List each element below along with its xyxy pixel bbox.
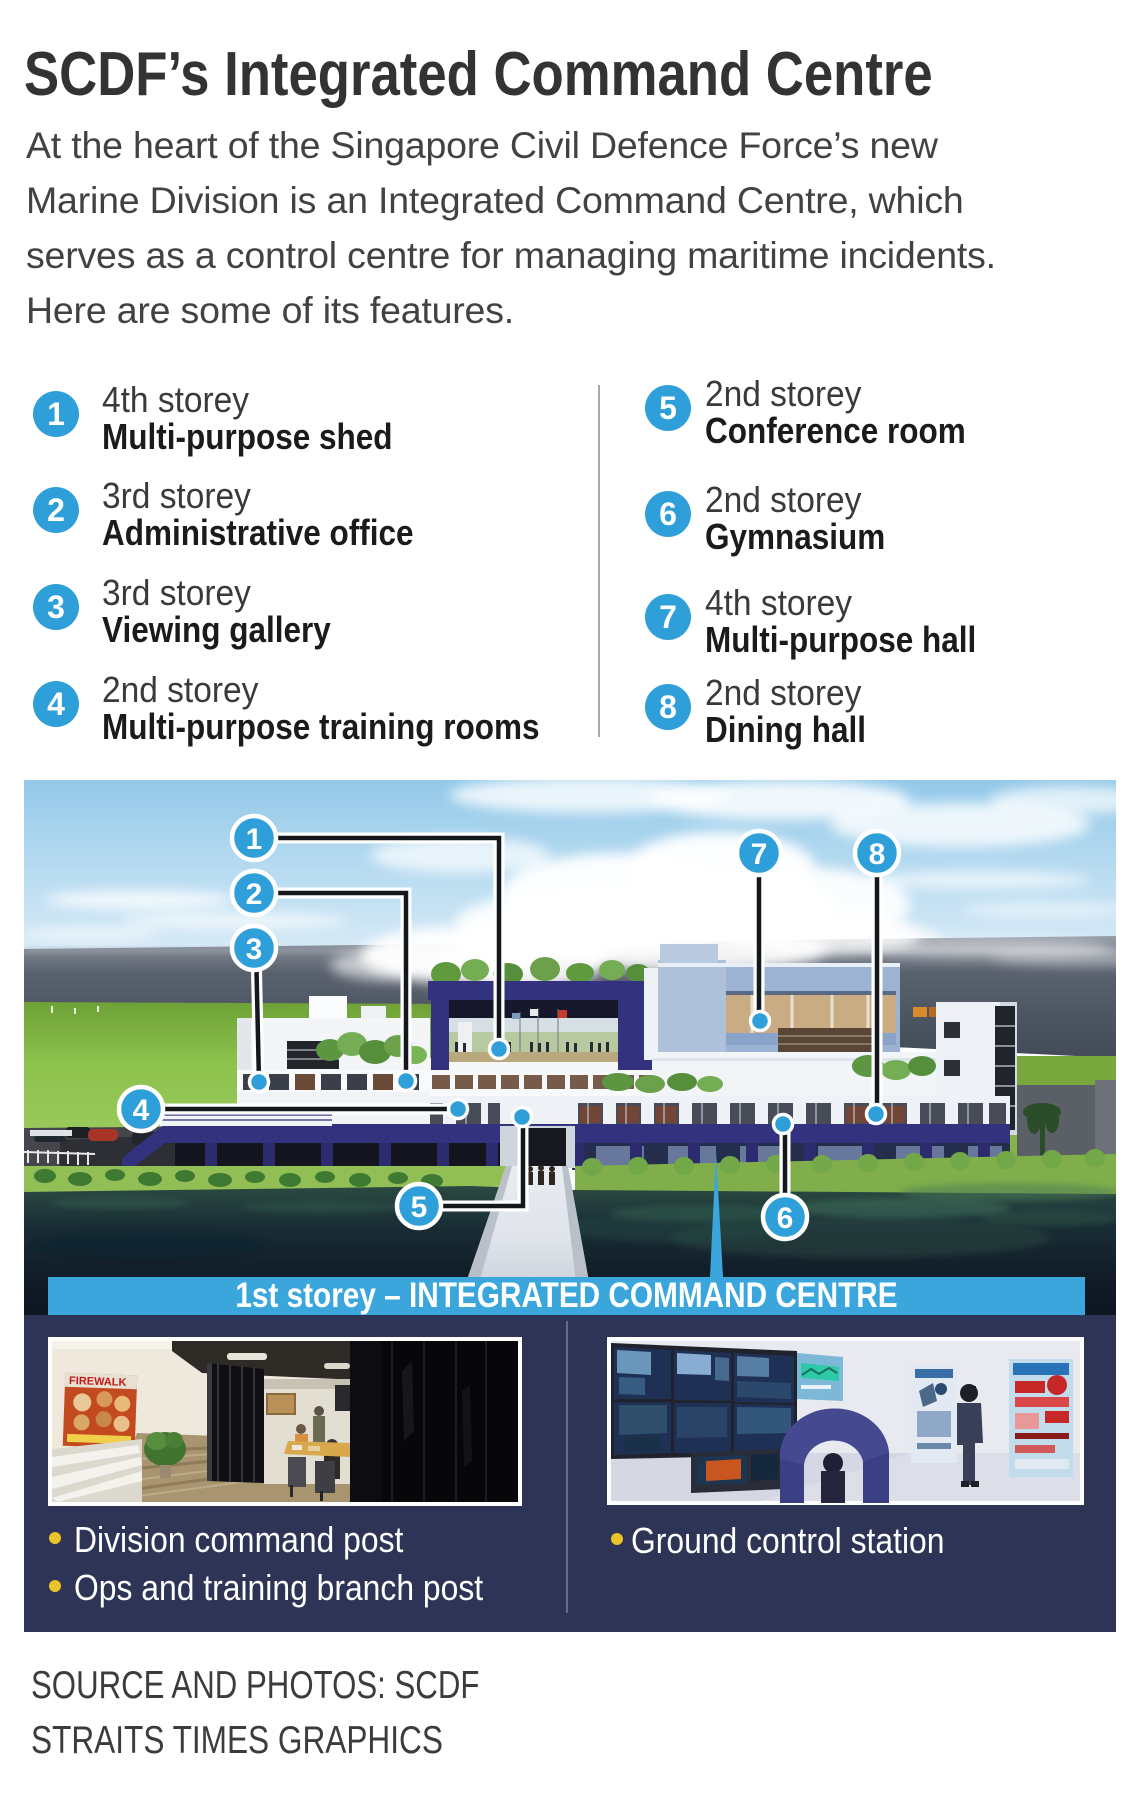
svg-text:2: 2 [246,878,263,911]
svg-text:7: 7 [751,838,768,871]
svg-text:1: 1 [246,823,263,856]
svg-text:8: 8 [869,838,886,871]
svg-text:4: 4 [133,1094,150,1127]
svg-text:FIREWALK: FIREWALK [69,1375,127,1389]
svg-text:5: 5 [411,1191,428,1224]
svg-text:3: 3 [246,933,263,966]
svg-text:6: 6 [777,1202,794,1235]
